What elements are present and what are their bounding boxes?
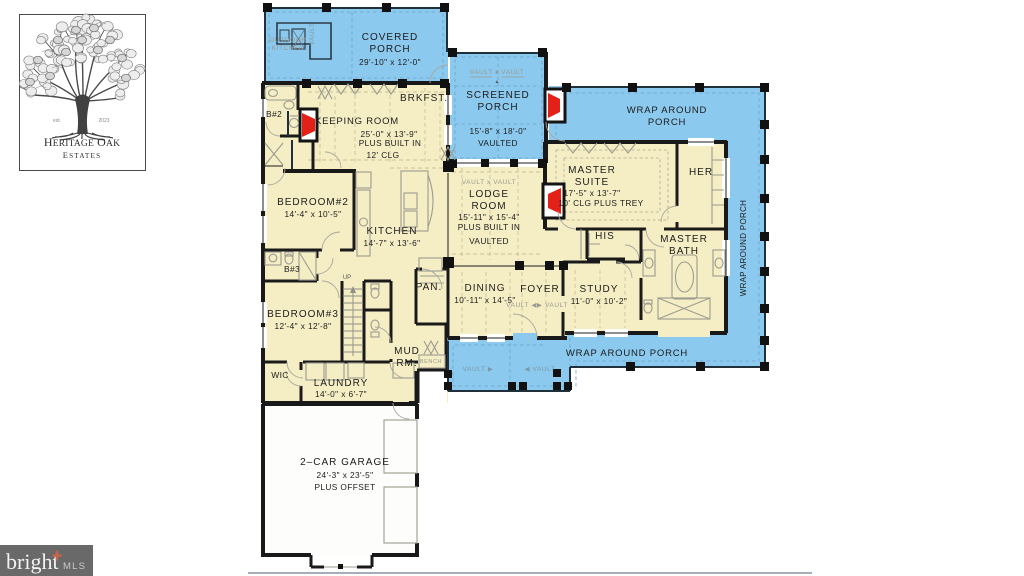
svg-text:B#3: B#3 [284, 264, 300, 274]
svg-text:RM.: RM. [396, 358, 417, 369]
svg-text:14'-7" x 13'-6": 14'-7" x 13'-6" [363, 238, 420, 248]
svg-text:2–CAR GARAGE: 2–CAR GARAGE [300, 457, 390, 468]
svg-text:PLUS BUILT IN: PLUS BUILT IN [458, 222, 521, 232]
svg-text:LODGE: LODGE [469, 189, 509, 200]
svg-text:WRAP AROUND PORCH: WRAP AROUND PORCH [739, 200, 748, 297]
svg-text:PAN.: PAN. [416, 282, 443, 293]
svg-text:PORCH: PORCH [477, 102, 518, 113]
svg-text:PLUS OFFSET: PLUS OFFSET [314, 482, 375, 492]
svg-text:MASTER: MASTER [568, 165, 616, 176]
svg-text:PORCH: PORCH [369, 44, 410, 55]
svg-text:LAUNDRY: LAUNDRY [314, 378, 369, 389]
svg-text:HIS: HIS [595, 231, 615, 242]
svg-text:PLUS BUILT IN: PLUS BUILT IN [359, 138, 422, 148]
svg-text:BATH: BATH [669, 246, 699, 257]
svg-text:ROOM: ROOM [471, 201, 506, 212]
svg-text:2023: 2023 [98, 118, 109, 124]
svg-text:MUD: MUD [394, 346, 420, 357]
svg-text:BEDROOM#2: BEDROOM#2 [277, 197, 349, 208]
svg-text:B#2: B#2 [266, 109, 282, 119]
svg-text:VAULT x VAULT: VAULT x VAULT [462, 179, 517, 186]
svg-text:14'-4" x 10'-5": 14'-4" x 10'-5" [284, 209, 341, 219]
svg-text:HER: HER [689, 167, 713, 178]
svg-text:17'-5" x 13'-7": 17'-5" x 13'-7" [563, 188, 620, 198]
svg-text:29'-10" x 12'-0": 29'-10" x 12'-0" [359, 57, 421, 67]
svg-text:24'-3" x 23'-5": 24'-3" x 23'-5" [316, 470, 373, 480]
svg-text:WRAP AROUND: WRAP AROUND [627, 105, 707, 116]
svg-text:KITCHEN: KITCHEN [367, 226, 418, 237]
svg-text:PORCH: PORCH [648, 117, 686, 128]
svg-text:OUTDOOR: OUTDOOR [269, 37, 306, 44]
svg-text:◀ VAULT: ◀ VAULT [525, 366, 556, 373]
svg-text:12' CLG: 12' CLG [367, 150, 400, 160]
svg-text:BENCH: BENCH [420, 359, 442, 365]
svg-text:VAULTED: VAULTED [478, 138, 518, 148]
svg-text:KITCHEN: KITCHEN [272, 45, 305, 52]
svg-text:KEEPING ROOM: KEEPING ROOM [315, 116, 399, 127]
svg-text:▲: ▲ [495, 79, 500, 85]
svg-text:15'-11" x 15'-4": 15'-11" x 15'-4" [458, 212, 519, 222]
svg-text:WRAP AROUND PORCH: WRAP AROUND PORCH [566, 348, 688, 359]
svg-text:UP: UP [343, 275, 351, 281]
svg-text:15'-8" x 18'-0": 15'-8" x 18'-0" [469, 126, 526, 136]
svg-text:est.: est. [53, 118, 61, 124]
svg-text:14'-0" x 6'-7": 14'-0" x 6'-7" [315, 389, 367, 399]
svg-text:SUITE: SUITE [575, 177, 609, 188]
svg-text:BRKFST.: BRKFST. [400, 93, 448, 104]
svg-text:MASTER: MASTER [660, 234, 708, 245]
svg-text:MLS: MLS [63, 561, 86, 572]
svg-text:DINING: DINING [465, 283, 506, 294]
svg-text:WIC: WIC [271, 370, 288, 380]
svg-text:BEDROOM#3: BEDROOM#3 [267, 309, 339, 320]
svg-text:12'-4" x 12'-8": 12'-4" x 12'-8" [274, 321, 331, 331]
svg-text:ESTATES: ESTATES [63, 150, 102, 160]
svg-text:STUDY: STUDY [580, 284, 619, 295]
svg-text:COVERED: COVERED [362, 32, 418, 43]
svg-text:VAULT: VAULT [309, 23, 316, 46]
svg-text:VAULT ◀▶ VAULT: VAULT ◀▶ VAULT [506, 302, 568, 309]
svg-text:bright: bright [6, 549, 59, 574]
svg-text:SCREENED: SCREENED [466, 90, 530, 101]
svg-text:FOYER: FOYER [520, 284, 559, 295]
svg-text:VAULT ♦ VAULT: VAULT ♦ VAULT [470, 69, 525, 76]
svg-text:VAULTED: VAULTED [469, 236, 509, 246]
svg-text:VAULT ▶: VAULT ▶ [463, 366, 494, 373]
svg-text:10' CLG PLUS TREY: 10' CLG PLUS TREY [558, 198, 643, 208]
svg-text:11'-0" x 10'-2": 11'-0" x 10'-2" [571, 296, 627, 306]
